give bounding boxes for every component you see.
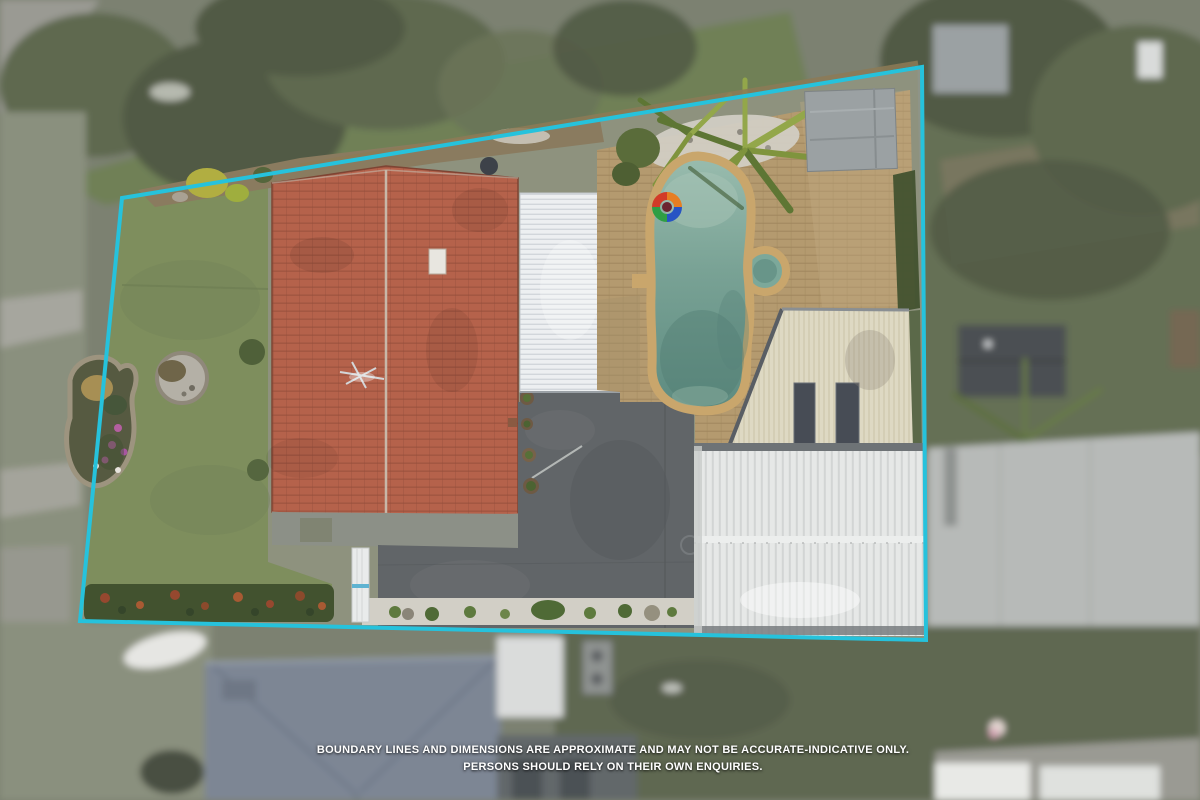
pool-float — [656, 196, 678, 218]
play-equipment — [150, 83, 190, 101]
shrub-pool — [616, 128, 660, 168]
patio-skylight — [836, 383, 859, 447]
mossy-pavers — [300, 518, 332, 542]
shrub — [247, 459, 269, 481]
garden-shed — [805, 88, 898, 172]
paving-block — [632, 274, 648, 288]
satellite-dish — [480, 157, 498, 175]
aerial-photo: BOUNDARY LINES AND DIMENSIONS ARE APPROX… — [0, 0, 1200, 800]
white-gate — [352, 548, 369, 622]
stairs-east — [944, 448, 957, 526]
garden-strip — [362, 598, 694, 625]
gate-stripe — [352, 584, 369, 588]
neighbor-house-south — [205, 655, 502, 800]
hedge-bottom — [84, 584, 334, 622]
aerial-photo-scene — [0, 0, 1200, 800]
disclaimer-text: BOUNDARY LINES AND DIMENSIONS ARE APPROX… — [13, 742, 1200, 776]
garden-bed-rocks — [157, 353, 207, 403]
neighbor-lawn-bottom-right — [928, 626, 1200, 756]
neighbor-flat-roof-south — [497, 637, 563, 717]
house-roof — [266, 157, 518, 528]
table-bottom — [583, 641, 612, 694]
disclaimer-line-2: PERSONS SHOULD RELY ON THEIR OWN ENQUIRI… — [13, 759, 1200, 776]
neighbor-building-top-right — [933, 25, 1008, 93]
neighbor-shed-east — [958, 325, 1066, 397]
shrub — [239, 339, 265, 365]
patio-skylight — [794, 383, 815, 447]
garage-roof — [694, 443, 926, 636]
neighbor-building-east — [928, 432, 1200, 630]
disclaimer-line-1: BOUNDARY LINES AND DIMENSIONS ARE APPROX… — [13, 742, 1200, 759]
crate-east — [1170, 310, 1200, 368]
pool-step — [672, 386, 728, 406]
roof-vent — [429, 249, 446, 274]
roof-patch — [508, 418, 517, 427]
